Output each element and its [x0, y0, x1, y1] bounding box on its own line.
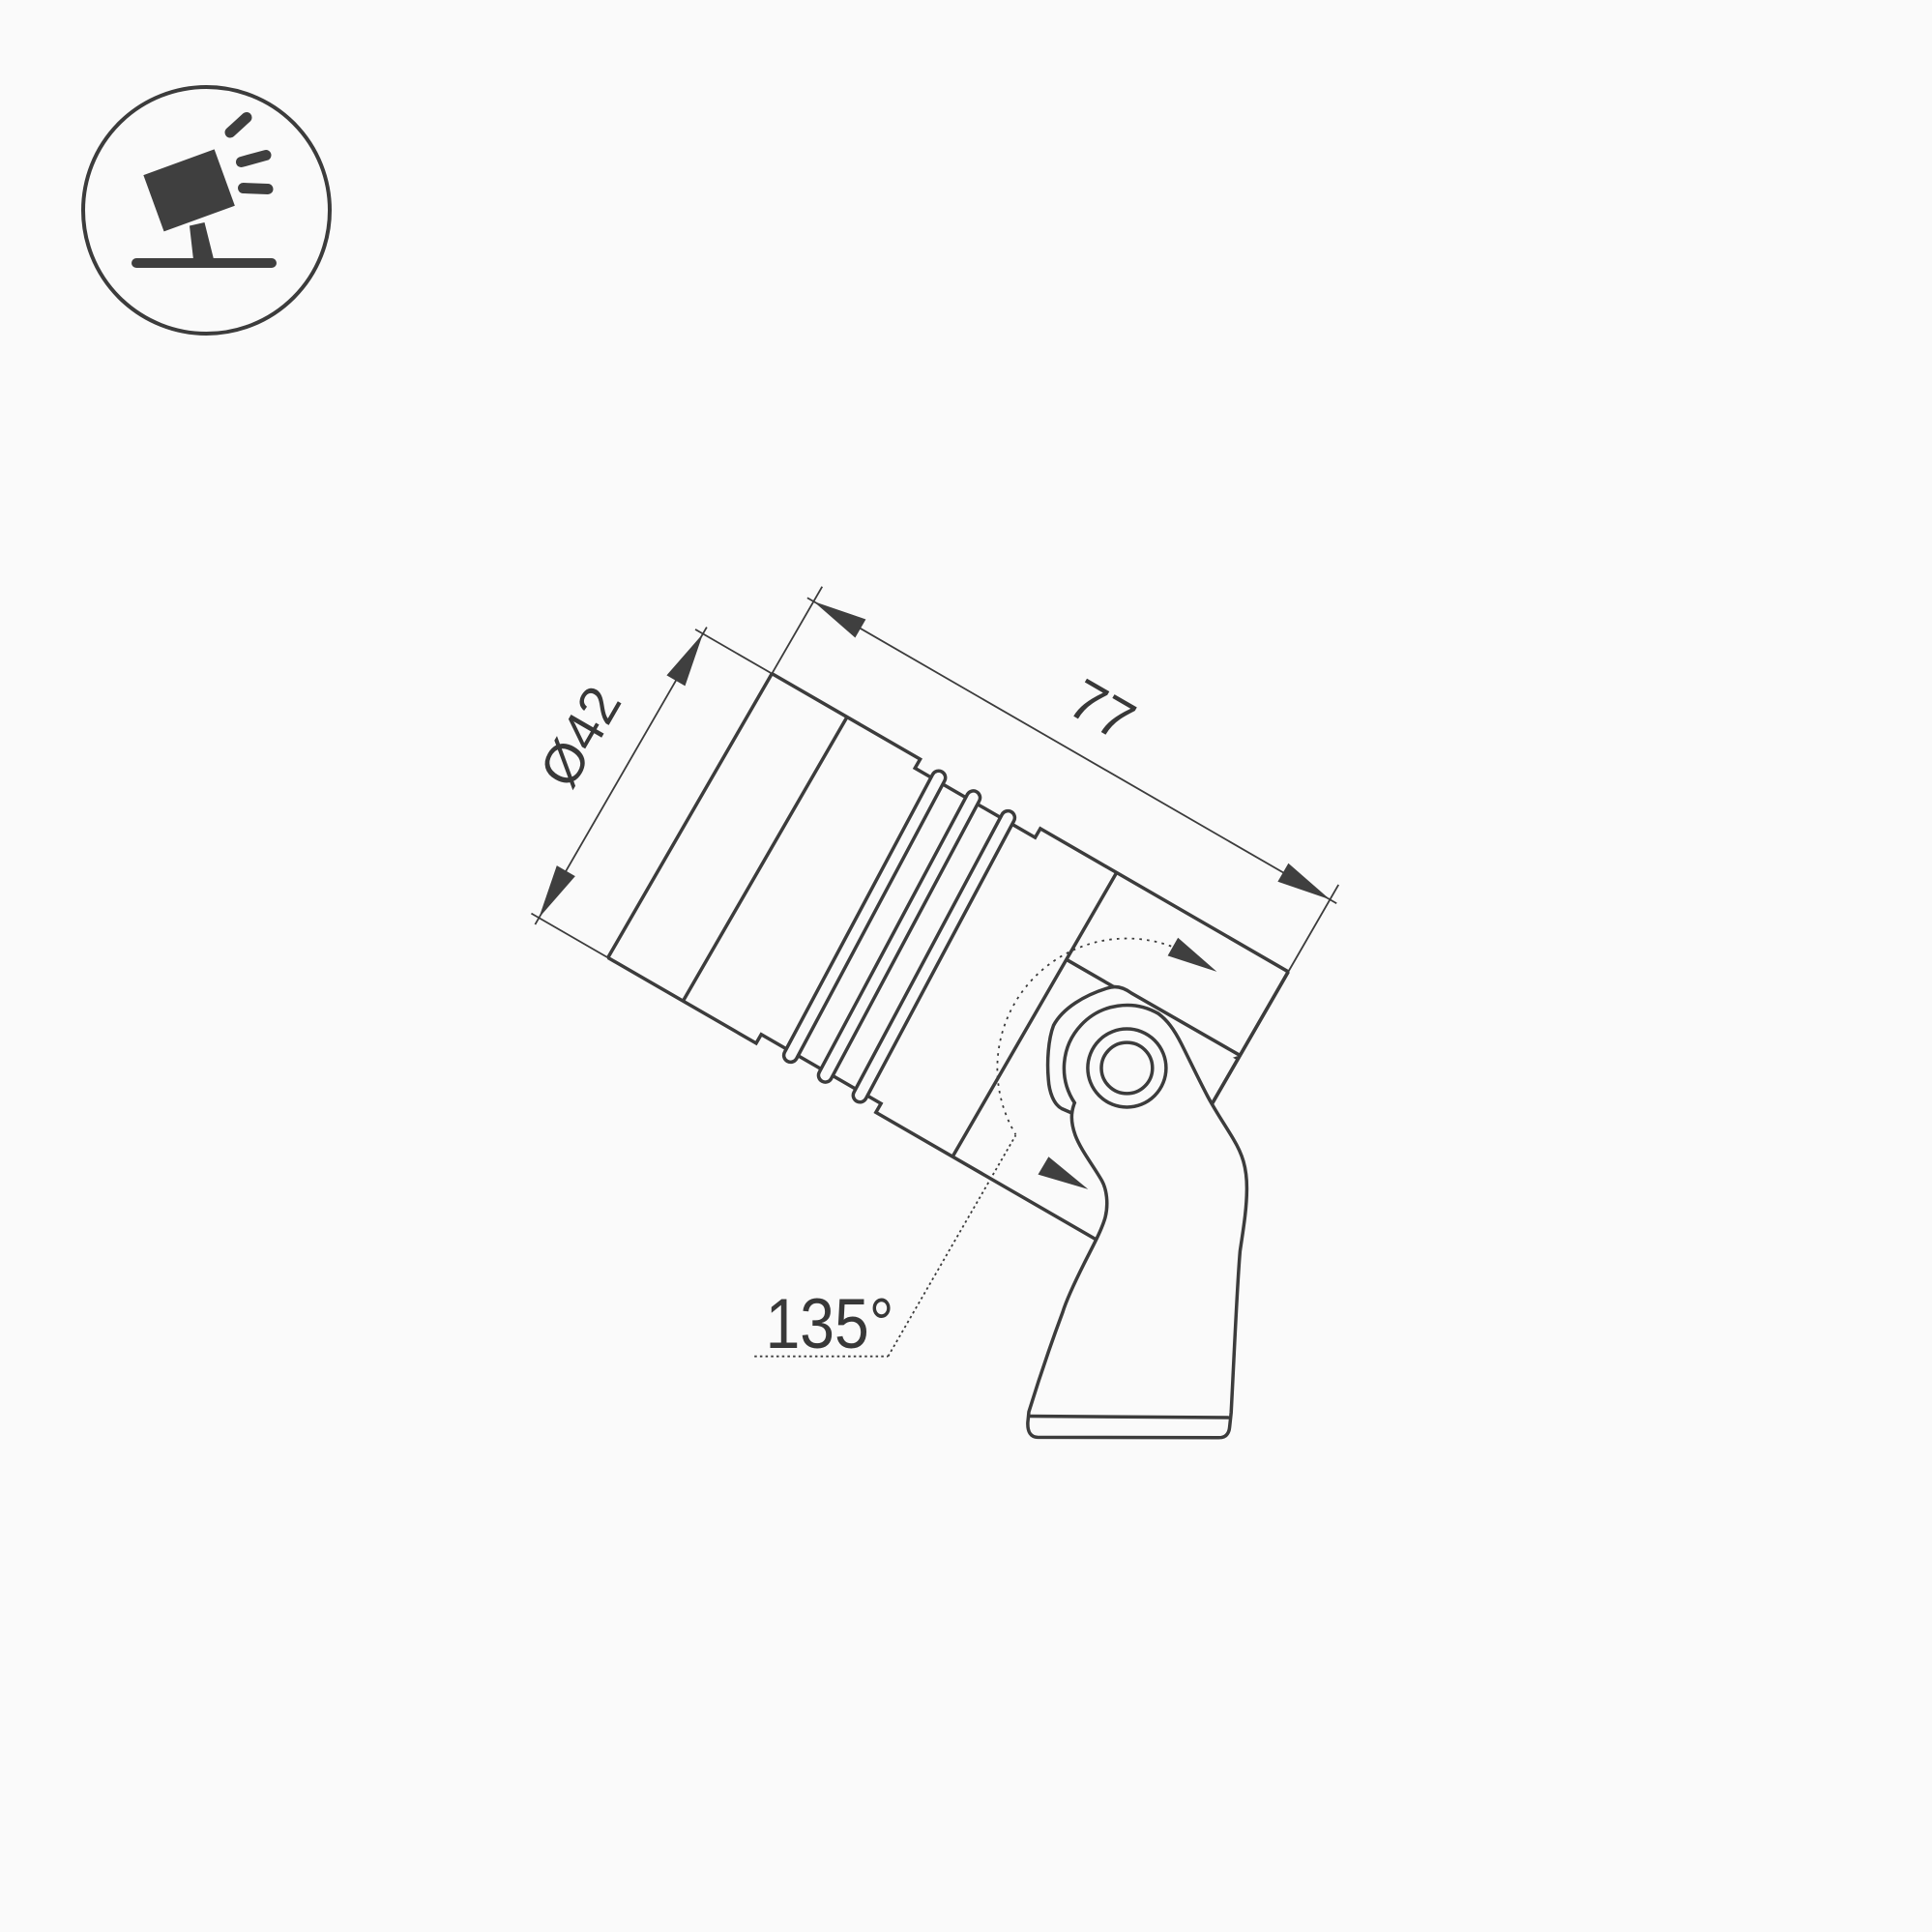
svg-text:135°: 135°: [766, 1284, 894, 1363]
